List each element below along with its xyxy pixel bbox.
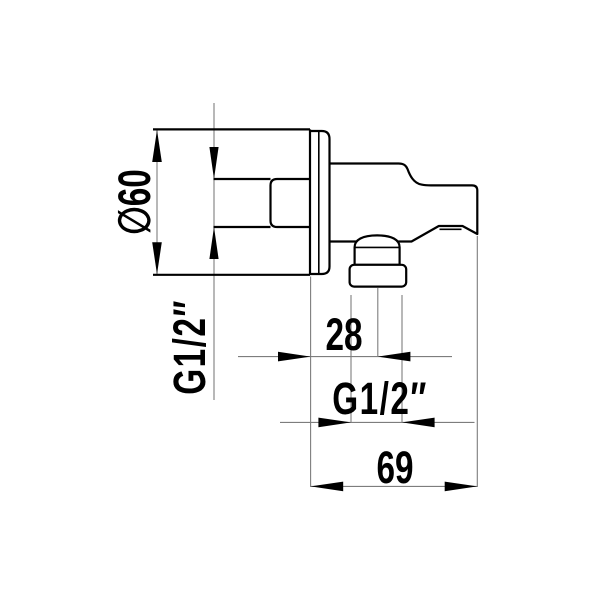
arrow-outlet-thread-left (318, 418, 351, 428)
escutcheon-cap (310, 131, 330, 274)
arrow-plate-dia-up (152, 130, 162, 162)
outlet-dome (355, 235, 400, 264)
arrow-plate-dia-down (152, 242, 162, 274)
technical-drawing-canvas: ∅60 G1/2″ 28 G1/2″ 69 (0, 0, 600, 600)
dimension-arrows (152, 130, 477, 491)
dimension-lines (157, 103, 477, 487)
drawing-svg (0, 0, 600, 600)
fitting-outline (153, 129, 477, 286)
arrow-wall-thread-up (209, 227, 218, 259)
arrow-28-right (378, 352, 411, 362)
wall-plate-body (153, 129, 310, 274)
outlet-nut (350, 265, 407, 287)
arrow-28-left (278, 352, 311, 362)
arrow-69-left (311, 482, 344, 492)
arrow-wall-thread-down (209, 147, 218, 179)
holder-bracket (330, 164, 478, 242)
stub-collar (271, 179, 311, 227)
wall-thread-stub (214, 179, 311, 227)
arrow-outlet-thread-right (402, 418, 435, 428)
arrow-69-right (445, 482, 478, 492)
